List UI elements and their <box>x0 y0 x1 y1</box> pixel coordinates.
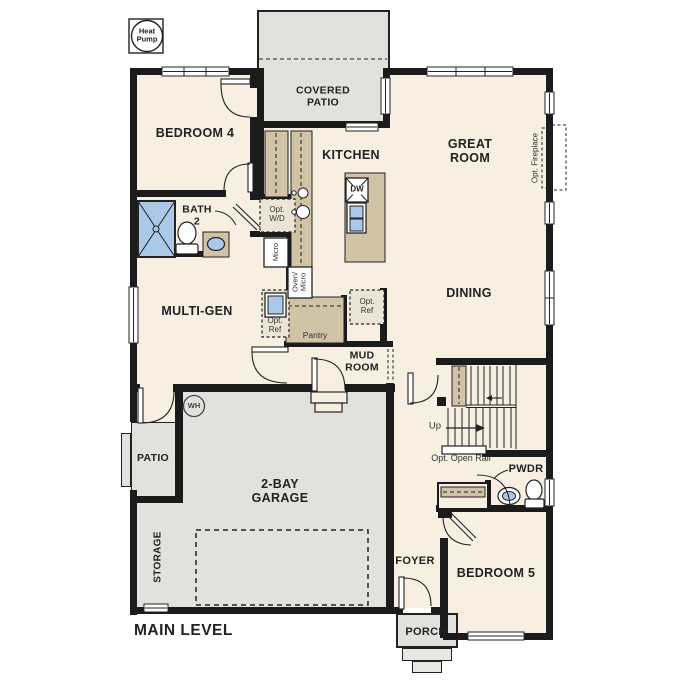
garage-label: 2-BAY GARAGE <box>252 477 309 505</box>
pwdr-label: PWDR <box>509 463 544 475</box>
storage-label: STORAGE <box>152 531 163 582</box>
floor-plan: Heat Pump COVERED PATIO BEDROOM 4 KITCHE… <box>0 0 687 687</box>
foyer-label: FOYER <box>395 555 434 567</box>
opt-ref-right-label: Opt. Ref <box>359 298 374 316</box>
opt-fireplace-label: Opt. Fireplace <box>532 128 541 188</box>
bath2-label: BATH 2 <box>182 204 212 228</box>
up-label: Up <box>429 422 441 433</box>
covered-patio-label: COVERED PATIO <box>296 85 350 109</box>
porch-label: PORCH <box>405 626 446 638</box>
opt-wd-label: Opt. W/D <box>269 206 285 224</box>
bedroom5-label: BEDROOM 5 <box>457 566 535 580</box>
dw-label: DW <box>349 186 364 195</box>
multi-gen-label: MULTI-GEN <box>161 304 232 318</box>
opt-ref-left-label: Opt. Ref <box>267 317 282 335</box>
great-room-label: GREAT ROOM <box>448 137 492 165</box>
heat-pump-label: Heat Pump <box>137 28 158 45</box>
bedroom4-label: BEDROOM 4 <box>156 126 234 140</box>
dining-label: DINING <box>446 286 492 300</box>
plan-title: MAIN LEVEL <box>134 622 233 639</box>
oven-micro-label: Oven/ Micro <box>292 272 309 292</box>
pantry-label: Pantry <box>303 331 328 341</box>
mud-room-label: MUD ROOM <box>345 350 379 374</box>
patio-label: PATIO <box>137 453 169 465</box>
micro-label: Micro <box>272 243 280 261</box>
kitchen-label: KITCHEN <box>322 148 380 162</box>
opt-open-rail-label: Opt. Open Rail <box>431 453 491 463</box>
wh-label: WH <box>188 402 201 410</box>
